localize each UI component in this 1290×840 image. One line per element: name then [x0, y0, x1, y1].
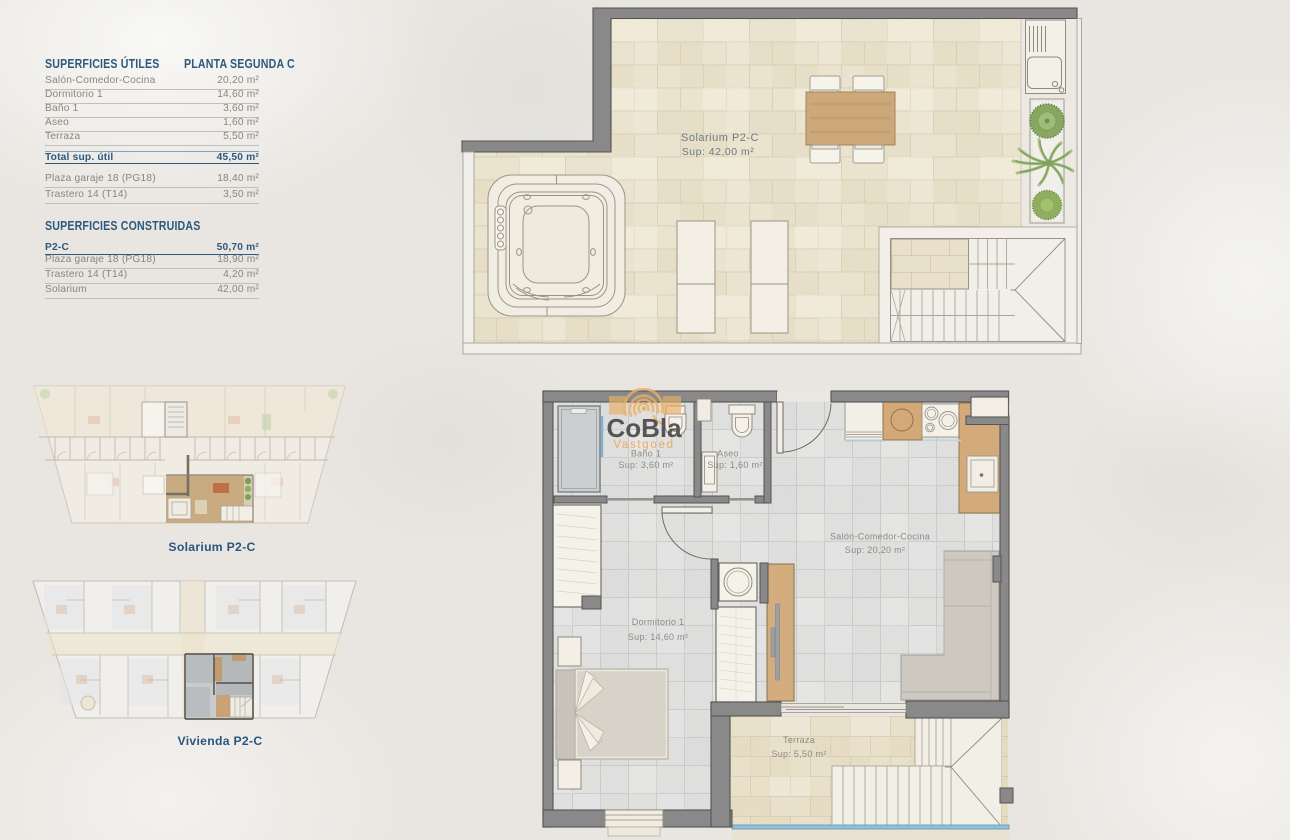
svg-text:Terraza: Terraza — [783, 735, 815, 745]
svg-text:Salón-Comedor-Cocina: Salón-Comedor-Cocina — [830, 532, 930, 542]
svg-text:Sup: 42,00 m²: Sup: 42,00 m² — [682, 146, 754, 158]
svg-text:Sup: 1,60 m²: Sup: 1,60 m² — [707, 460, 762, 470]
svg-text:Solarium P2-C: Solarium P2-C — [681, 132, 759, 144]
svg-text:Sup: 5,50 m²: Sup: 5,50 m² — [771, 749, 826, 759]
svg-text:Vastgoed: Vastgoed — [613, 439, 674, 451]
svg-text:Sup: 14,60 m²: Sup: 14,60 m² — [628, 632, 688, 642]
svg-text:Sup: 3,60 m²: Sup: 3,60 m² — [618, 460, 673, 470]
svg-text:Sup: 20,20 m²: Sup: 20,20 m² — [845, 545, 905, 555]
svg-text:Aseo: Aseo — [717, 449, 739, 459]
svg-text:Dormitorio 1: Dormitorio 1 — [632, 617, 685, 627]
